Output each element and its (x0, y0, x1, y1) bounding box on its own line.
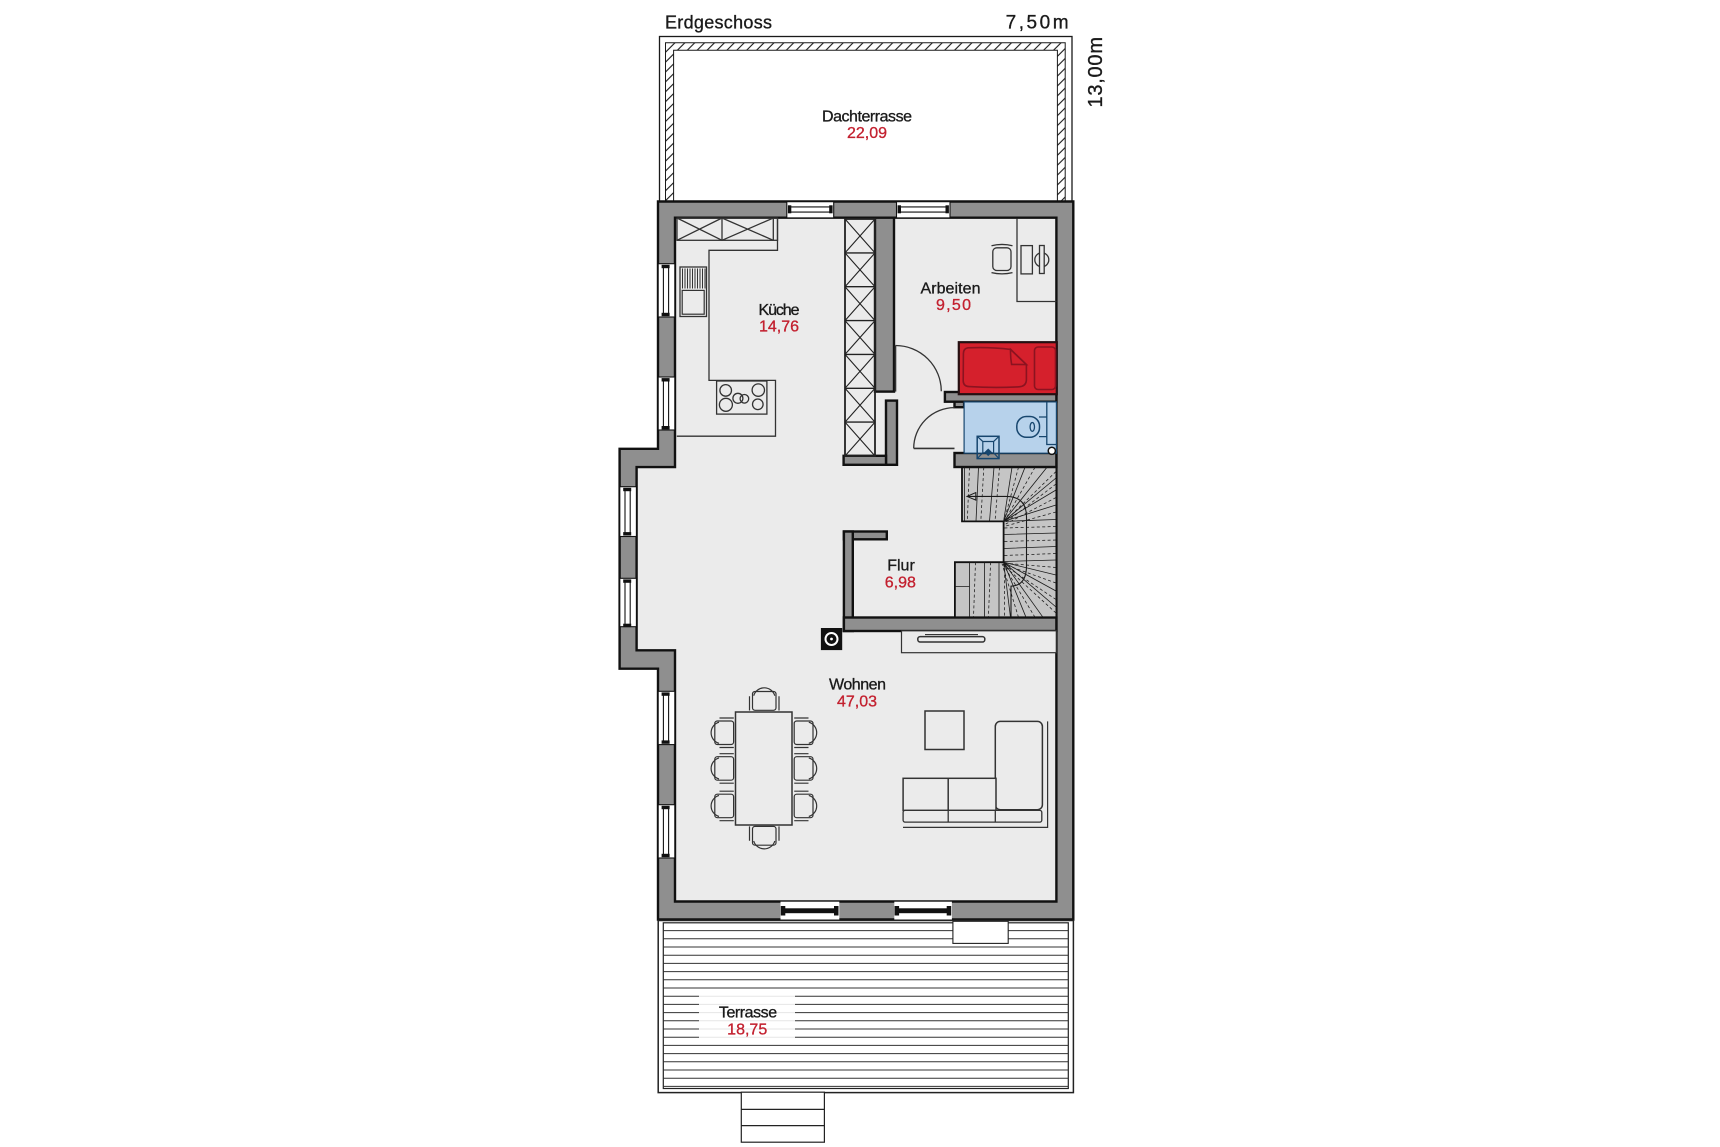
svg-text:22,09: 22,09 (847, 125, 887, 142)
svg-text:7,50m: 7,50m (1006, 13, 1069, 34)
svg-text:Flur: Flur (887, 558, 915, 575)
svg-text:47,03: 47,03 (837, 694, 877, 711)
svg-text:Terrasse: Terrasse (719, 1005, 777, 1022)
svg-text:Erdgeschoss: Erdgeschoss (665, 13, 772, 33)
svg-text:18,75: 18,75 (727, 1022, 767, 1039)
svg-text:6,98: 6,98 (885, 575, 916, 592)
svg-text:9,50: 9,50 (936, 297, 971, 314)
svg-text:13,00m: 13,00m (1085, 37, 1107, 108)
svg-text:Küche: Küche (759, 302, 800, 319)
svg-text:14,76: 14,76 (759, 319, 799, 336)
svg-text:Arbeiten: Arbeiten (921, 280, 981, 297)
svg-text:Dachterrasse: Dachterrasse (822, 108, 912, 125)
svg-text:Wohnen: Wohnen (829, 677, 886, 694)
